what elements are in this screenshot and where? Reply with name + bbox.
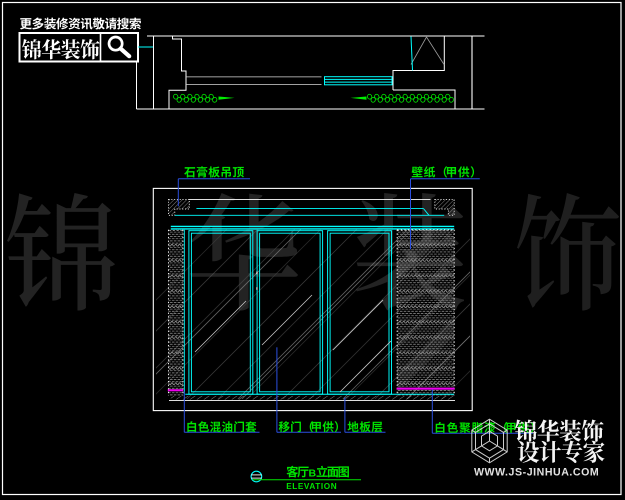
svg-text:B: B — [309, 467, 317, 479]
svg-text:WWW.JS-JINHUA.COM: WWW.JS-JINHUA.COM — [474, 467, 599, 479]
svg-text:ELEVATION: ELEVATION — [286, 482, 337, 491]
